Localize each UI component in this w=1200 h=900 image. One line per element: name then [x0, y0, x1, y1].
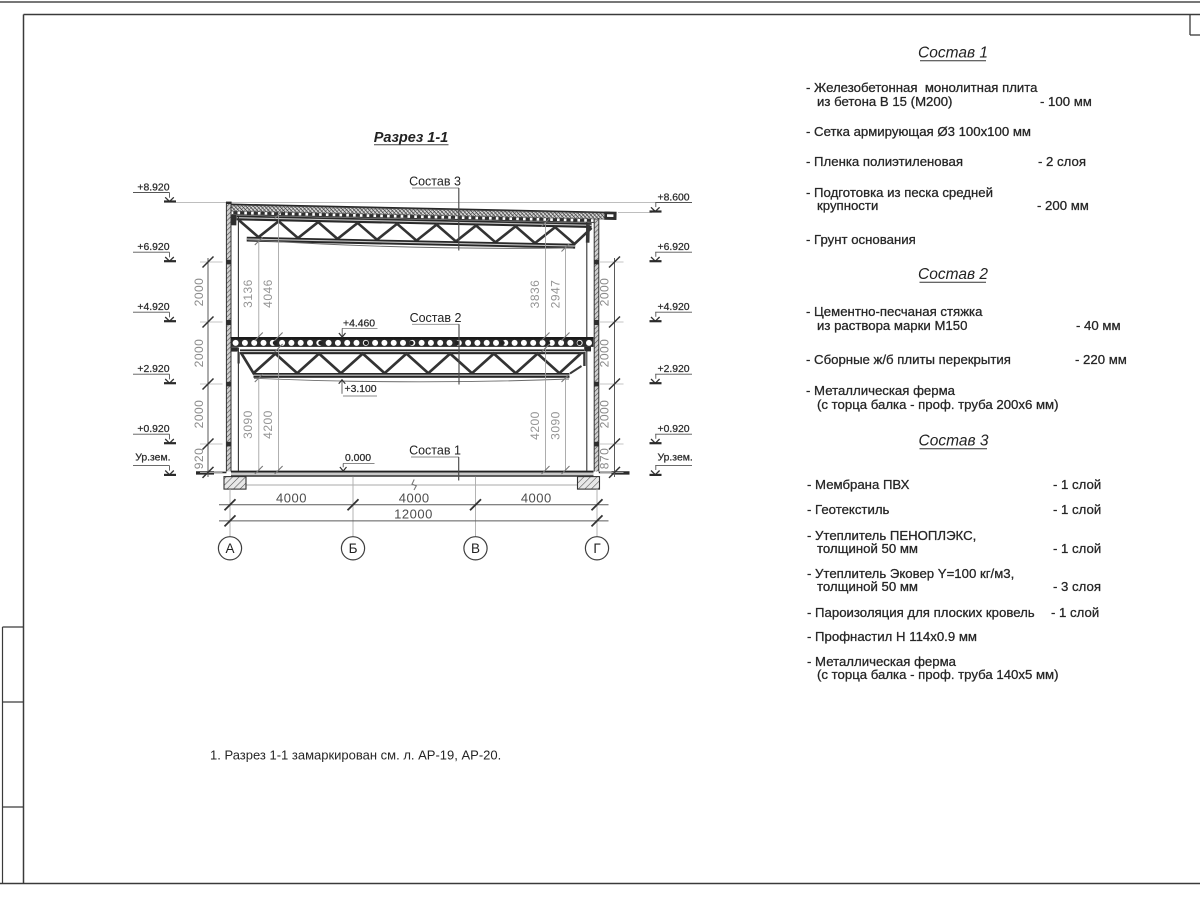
svg-text:+2.920: +2.920	[137, 364, 169, 375]
svg-text:- 1 слой: - 1 слой	[1053, 541, 1101, 556]
svg-text:Ур.зем.: Ур.зем.	[135, 453, 170, 464]
svg-text:Состав 1: Состав 1	[409, 444, 461, 458]
svg-text:4000: 4000	[276, 490, 307, 505]
svg-text:12000: 12000	[394, 506, 433, 521]
svg-text:+8.920: +8.920	[137, 183, 169, 194]
svg-text:3090: 3090	[549, 411, 563, 440]
svg-text:- 1 слой: - 1 слой	[1051, 605, 1099, 620]
svg-text:870: 870	[598, 448, 612, 470]
svg-text:- Сборные ж/б плиты перекрытия: - Сборные ж/б плиты перекрытия	[806, 352, 1011, 367]
svg-text:из раствора марки М150: из раствора марки М150	[817, 318, 967, 333]
svg-text:+6.920: +6.920	[137, 242, 169, 253]
svg-text:- Металлическая ферма: - Металлическая ферма	[806, 383, 956, 398]
svg-text:- Пленка полиэтиленовая: - Пленка полиэтиленовая	[806, 154, 963, 169]
svg-text:920: 920	[192, 448, 206, 470]
svg-text:+6.920: +6.920	[658, 242, 690, 253]
svg-text:Б: Б	[349, 541, 358, 556]
svg-text:В: В	[471, 541, 480, 556]
svg-text:- 3 слоя: - 3 слоя	[1053, 579, 1101, 594]
svg-text:4046: 4046	[261, 279, 275, 308]
svg-text:2000: 2000	[192, 339, 206, 368]
svg-text:- 1 слой: - 1 слой	[1053, 477, 1101, 492]
svg-text:2947: 2947	[549, 280, 563, 309]
svg-text:3136: 3136	[241, 279, 255, 308]
svg-text:- 200 мм: - 200 мм	[1037, 198, 1089, 213]
svg-text:2000: 2000	[598, 400, 612, 429]
svg-text:+4.920: +4.920	[137, 302, 169, 313]
svg-text:- Цементно-песчаная стяжка: - Цементно-песчаная стяжка	[806, 304, 983, 319]
svg-text:Состав 2: Состав 2	[918, 266, 988, 283]
svg-text:- 1 слой: - 1 слой	[1053, 502, 1101, 517]
svg-text:Разрез 1-1: Разрез 1-1	[374, 130, 448, 146]
svg-text:- Сетка армирующая Ø3 100х100: - Сетка армирующая Ø3 100х100 мм	[806, 124, 1031, 139]
svg-text:Состав 2: Состав 2	[410, 311, 462, 325]
svg-text:4000: 4000	[399, 490, 430, 505]
svg-text:- Геотекстиль: - Геотекстиль	[807, 502, 890, 517]
svg-text:+4.460: +4.460	[343, 318, 375, 329]
svg-text:2000: 2000	[598, 339, 612, 368]
svg-text:2000: 2000	[192, 278, 206, 307]
svg-text:+0.920: +0.920	[137, 424, 169, 435]
svg-text:Состав 3: Состав 3	[919, 433, 989, 450]
svg-text:- Железобетонная монолитная п: - Железобетонная монолитная плита	[806, 80, 1038, 95]
svg-text:4200: 4200	[528, 411, 542, 440]
svg-text:- Профнастил Н 114х0.9 мм: - Профнастил Н 114х0.9 мм	[807, 629, 977, 644]
svg-text:- 220 мм: - 220 мм	[1075, 352, 1127, 367]
svg-text:Г: Г	[593, 541, 601, 556]
svg-text:(с торца балка - проф. труба 1: (с торца балка - проф. труба 140х5 мм)	[817, 667, 1058, 682]
svg-text:- 2 слоя: - 2 слоя	[1038, 154, 1086, 169]
svg-text:Ур.зем.: Ур.зем.	[658, 453, 693, 464]
svg-text:Состав 3: Состав 3	[409, 174, 461, 188]
svg-text:+8.600: +8.600	[658, 193, 690, 204]
svg-text:- Пароизоляция для плоских кро: - Пароизоляция для плоских кровель	[807, 605, 1035, 620]
svg-text:А: А	[225, 541, 234, 556]
svg-text:+3.100: +3.100	[345, 384, 377, 395]
svg-text:- Грунт основания: - Грунт основания	[806, 232, 916, 247]
svg-text:- 40 мм: - 40 мм	[1076, 318, 1121, 333]
svg-text:3090: 3090	[241, 410, 255, 439]
svg-text:из бетона В 15 (М200): из бетона В 15 (М200)	[817, 94, 952, 109]
svg-text:толщиной 50 мм: толщиной 50 мм	[817, 541, 918, 556]
svg-text:3836: 3836	[528, 280, 542, 309]
svg-text:2000: 2000	[598, 278, 612, 307]
svg-text:+2.920: +2.920	[658, 364, 690, 375]
svg-text:+4.920: +4.920	[658, 302, 690, 313]
svg-text:Состав 1: Состав 1	[918, 45, 988, 62]
svg-text:- 100 мм: - 100 мм	[1040, 94, 1092, 109]
svg-text:- Мембрана ПВХ: - Мембрана ПВХ	[807, 477, 910, 492]
svg-text:2000: 2000	[192, 400, 206, 429]
svg-text:0.000: 0.000	[345, 453, 371, 464]
svg-text:4000: 4000	[521, 490, 552, 505]
svg-text:4200: 4200	[261, 410, 275, 439]
svg-text:+0.920: +0.920	[658, 424, 690, 435]
svg-text:крупности: крупности	[817, 198, 878, 213]
svg-text:толщиной 50 мм: толщиной 50 мм	[817, 579, 918, 594]
svg-text:(с торца балка - проф. труба 2: (с торца балка - проф. труба 200х6 мм)	[817, 397, 1058, 412]
svg-text:1. Разрез 1-1 замаркирован см.: 1. Разрез 1-1 замаркирован см. л. АР-19,…	[210, 748, 501, 763]
